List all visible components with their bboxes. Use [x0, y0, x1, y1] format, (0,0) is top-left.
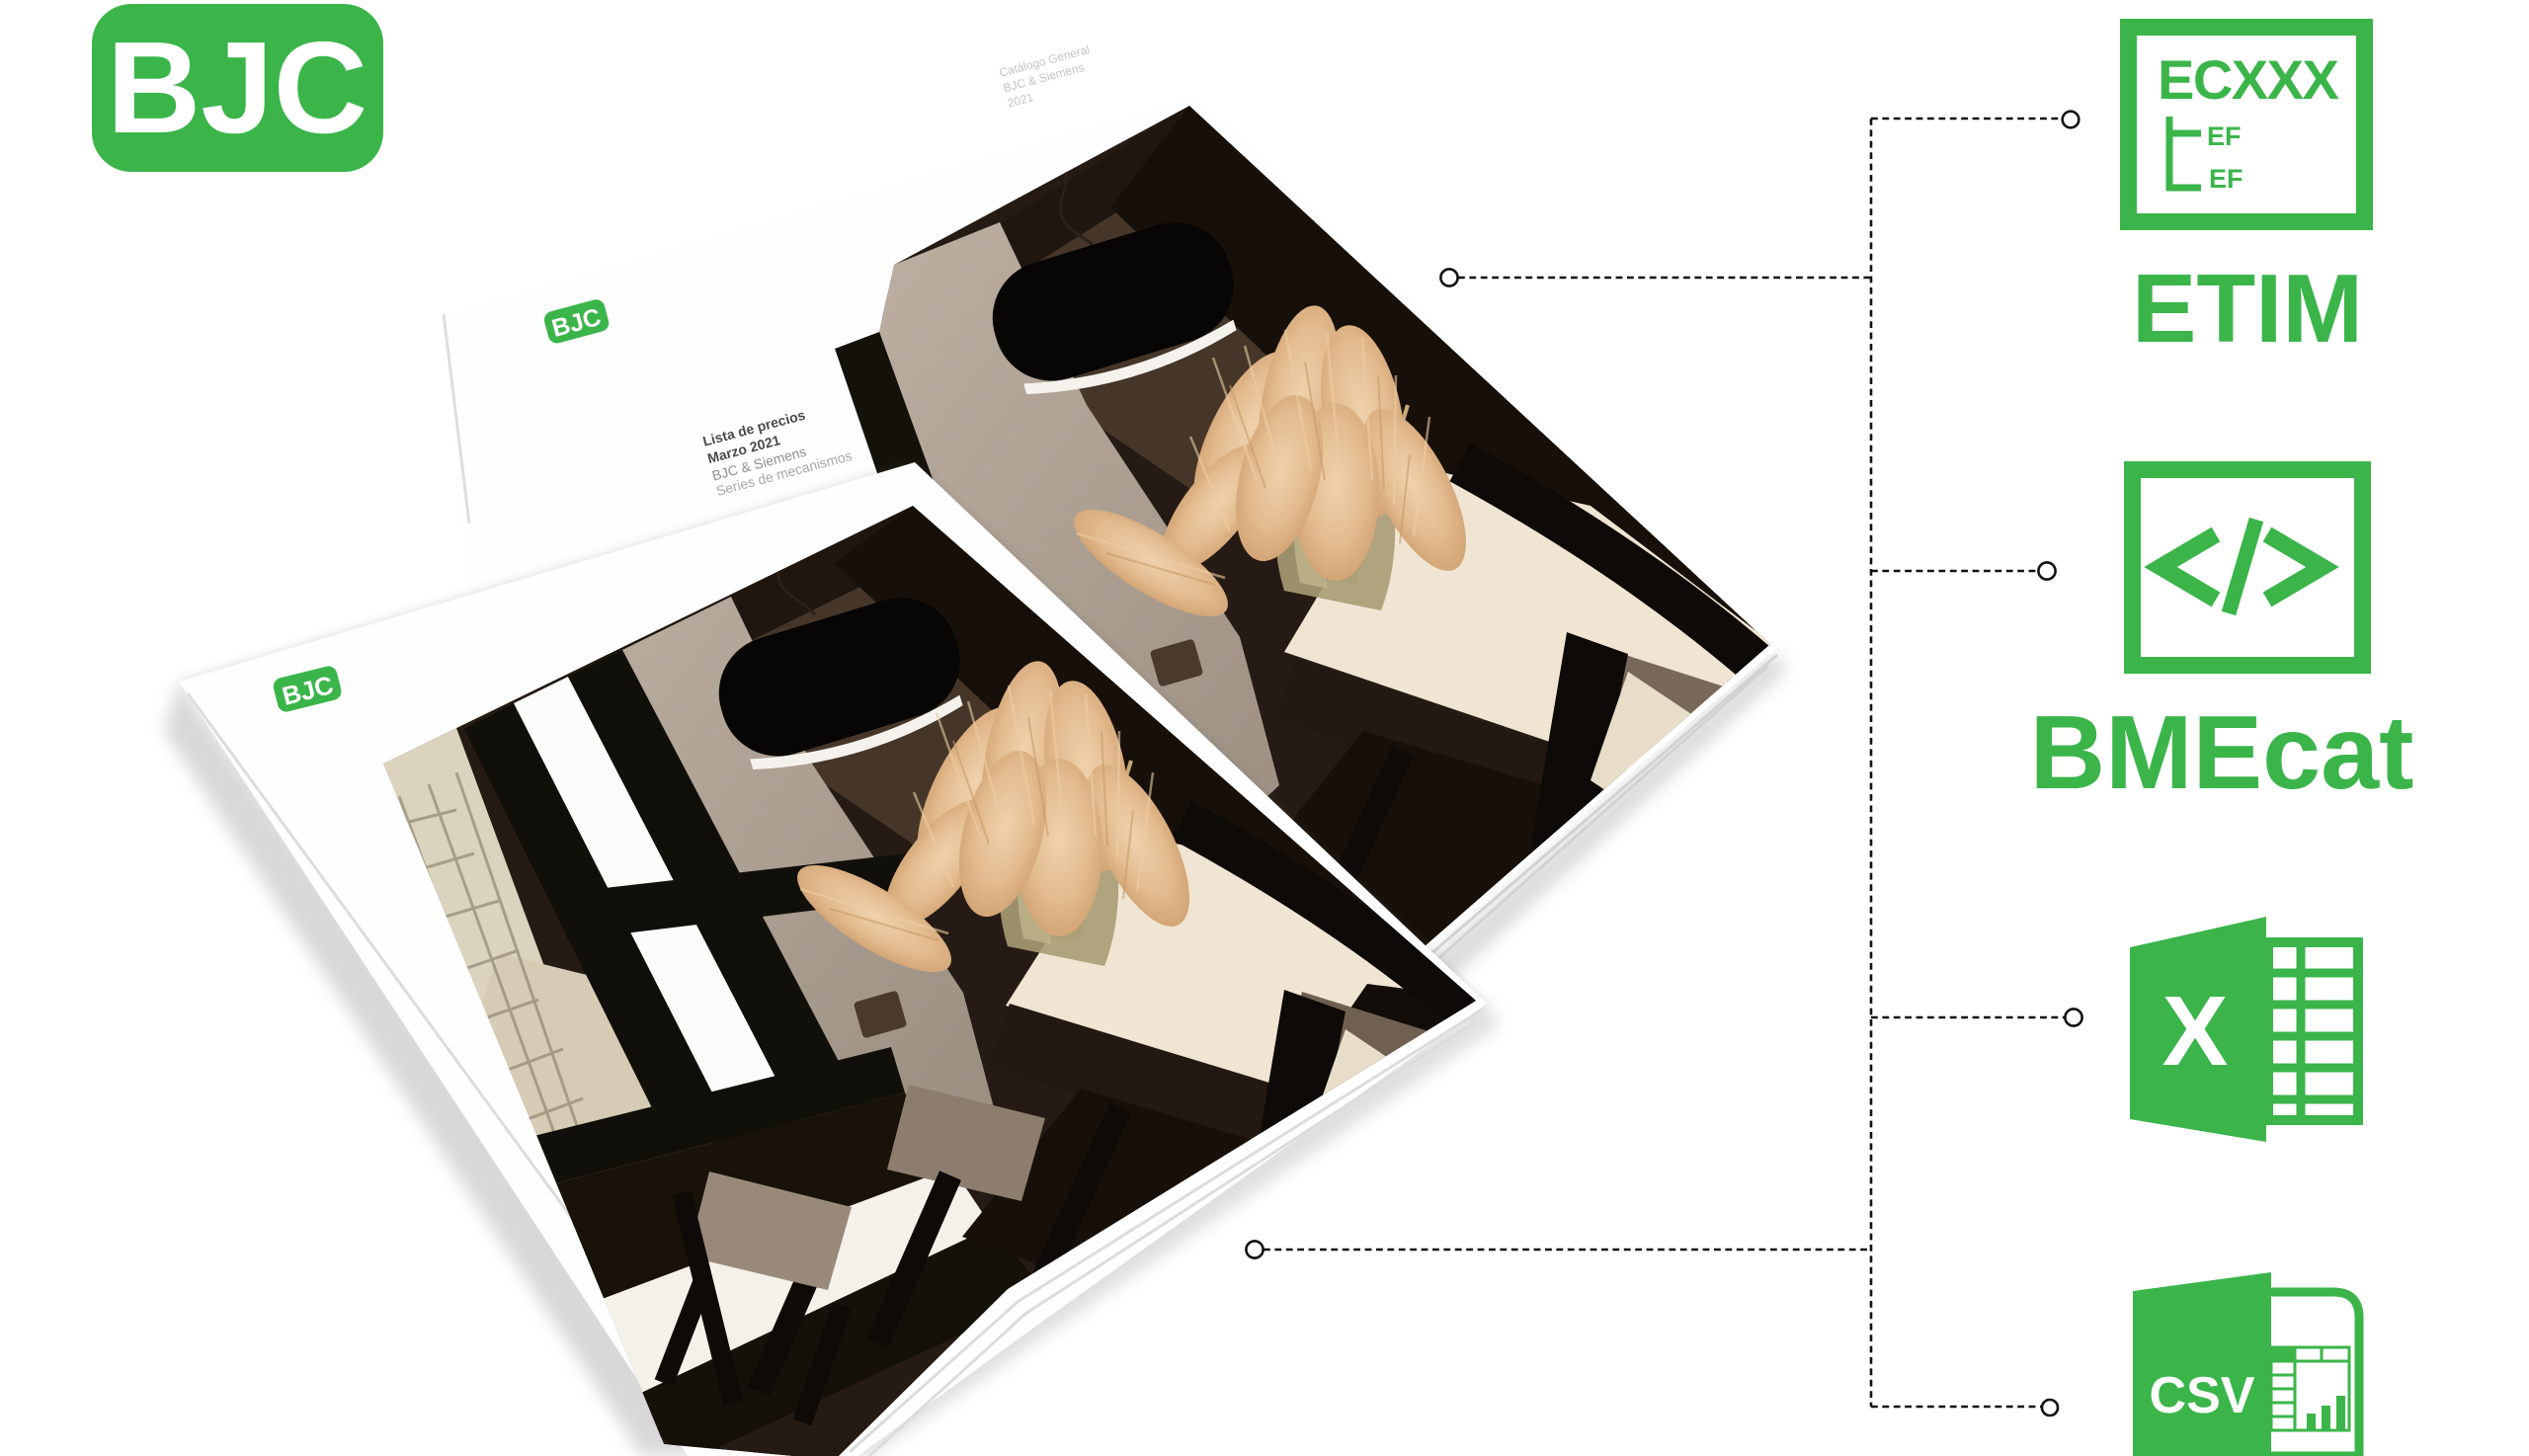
svg-text:BJC: BJC [107, 15, 367, 160]
svg-text:CSV: CSV [2150, 1367, 2255, 1424]
svg-text:X: X [2162, 976, 2229, 1087]
svg-text:EF: EF [2209, 164, 2243, 194]
svg-text:ECXXX: ECXXX [2158, 48, 2338, 111]
svg-text:EF: EF [2207, 121, 2242, 151]
svg-text:BMEcat: BMEcat [2030, 694, 2414, 811]
svg-text:ETIM: ETIM [2132, 254, 2363, 363]
